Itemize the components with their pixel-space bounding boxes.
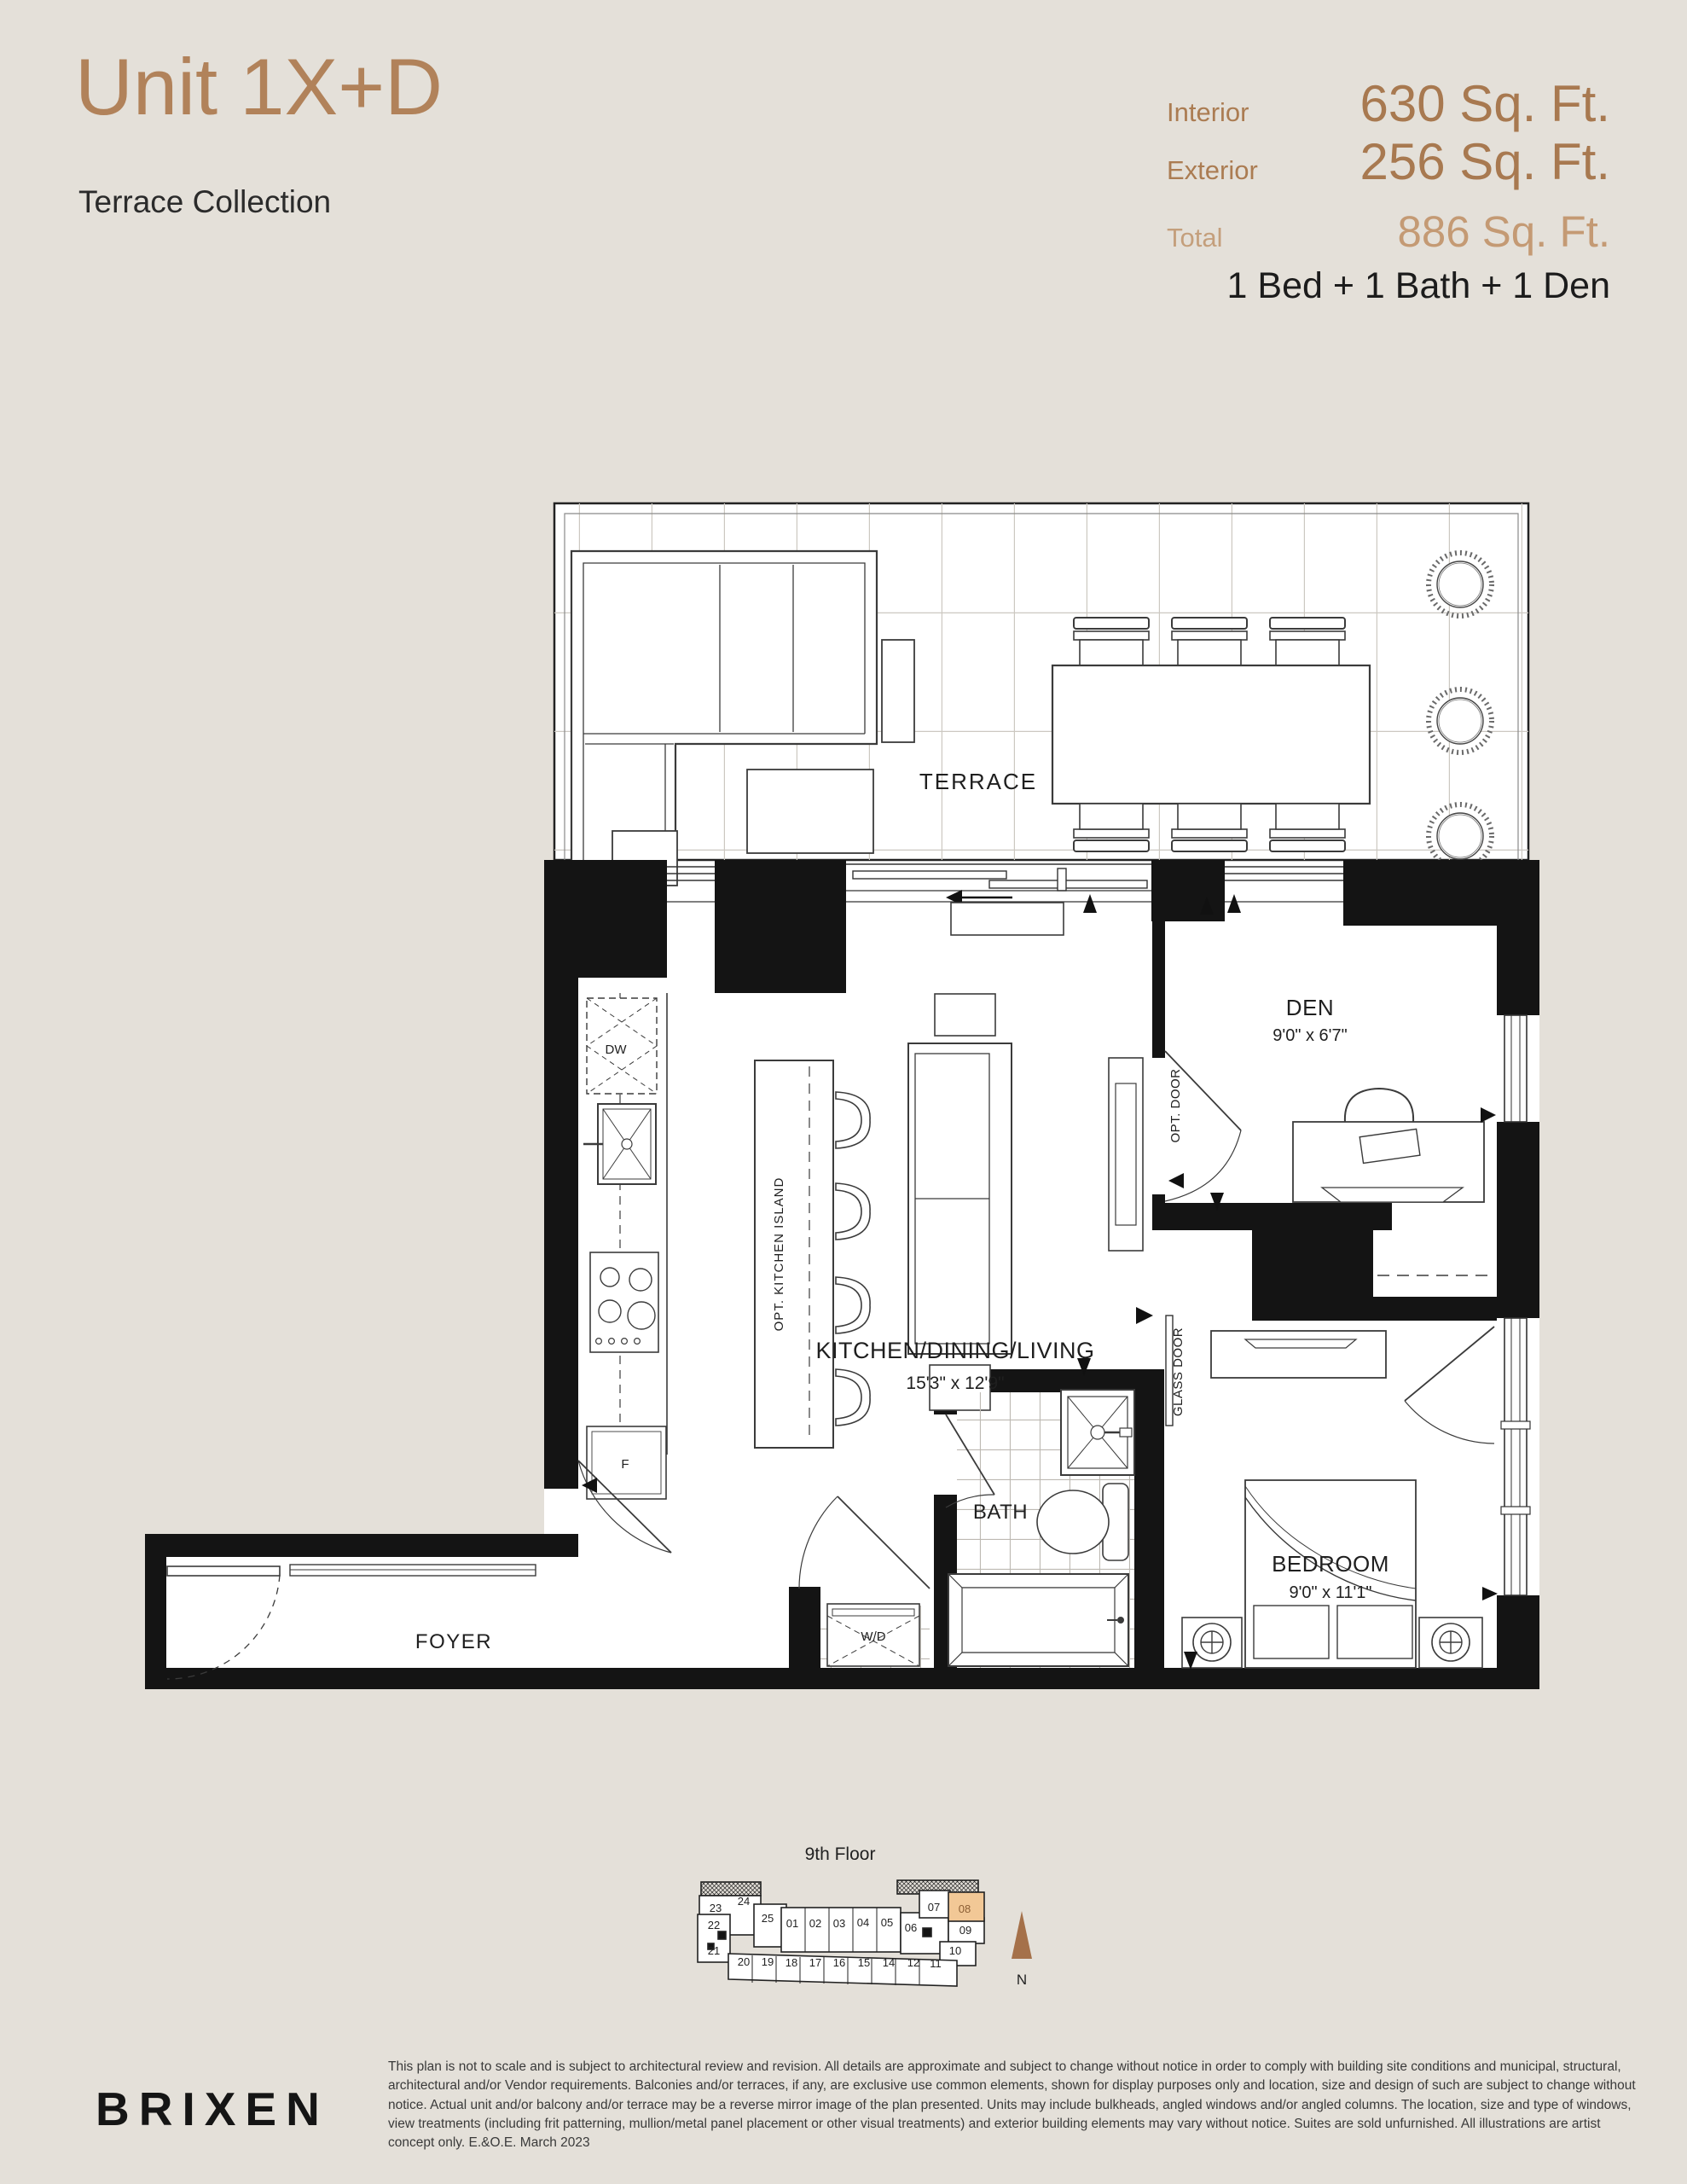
keyplan-unit-04: 04 — [857, 1916, 869, 1929]
keyplan-unit-18: 18 — [786, 1956, 797, 1969]
floorplan-page: Unit 1X+D Terrace Collection Interior 63… — [0, 0, 1687, 2184]
keyplan-unit-19: 19 — [762, 1955, 774, 1968]
room-dims-bedroom: 9'0" x 11'1" — [1289, 1583, 1371, 1602]
terrace-dining-set — [1052, 618, 1370, 851]
keyplan-unit-10: 10 — [949, 1944, 961, 1957]
nightstand-right — [1419, 1618, 1482, 1668]
window-mullion — [1501, 1421, 1530, 1429]
stat-value-total: 886 Sq. Ft. — [1398, 210, 1610, 253]
dining-chair — [1074, 618, 1149, 665]
stat-label-interior: Interior — [1167, 99, 1249, 125]
living-side-table — [935, 994, 995, 1036]
sliding-door-mullion — [1058, 868, 1066, 891]
stat-row-interior: Interior 630 Sq. Ft. — [1167, 78, 1610, 130]
keyplan-unit-03: 03 — [833, 1917, 845, 1930]
north-arrow-icon — [1012, 1911, 1032, 1959]
legal-disclaimer: This plan is not to scale and is subject… — [388, 2058, 1650, 2153]
floorplan-drawing: TERRACEKITCHEN/DINING/LIVING15'3" x 12'9… — [145, 495, 1544, 1689]
keyplan-unit-16: 16 — [833, 1956, 845, 1969]
tv-console — [1109, 1058, 1143, 1251]
dresser — [1211, 1331, 1386, 1378]
annotation-island: OPT. KITCHEN ISLAND — [772, 1177, 786, 1332]
keyplan-unit-14: 14 — [883, 1956, 895, 1969]
pillow — [1337, 1606, 1412, 1658]
keyplan-unit-05: 05 — [881, 1916, 893, 1929]
dining-chair — [1270, 618, 1345, 665]
fixture-label-dw: DW — [606, 1043, 628, 1057]
keyplan-unit-06: 06 — [905, 1921, 917, 1934]
fixture-label-wd: W/D — [861, 1629, 885, 1644]
bathtub — [948, 1574, 1128, 1666]
keyplan-hatch-roof — [701, 1882, 761, 1896]
annotation-optdoor: OPT. DOOR — [1168, 1068, 1183, 1142]
dining-chair — [1270, 804, 1345, 851]
keyplan-unit-12: 12 — [907, 1956, 919, 1969]
compass-label: N — [1017, 1972, 1027, 1988]
keyplan-unit-22: 22 — [708, 1919, 720, 1931]
area-stats: Interior 630 Sq. Ft. Exterior 256 Sq. Ft… — [1167, 78, 1610, 307]
annotation-glassdoor: GLASS DOOR — [1171, 1327, 1186, 1416]
stat-value-interior: 630 Sq. Ft. — [1360, 78, 1611, 130]
window-mullion — [1501, 1507, 1530, 1514]
den-desk — [1293, 1122, 1484, 1202]
room-label-bath: BATH — [973, 1501, 1028, 1524]
media-bench — [951, 903, 1064, 935]
keyplan-unit-11: 11 — [930, 1957, 942, 1970]
living-sofa — [908, 1043, 1012, 1354]
dining-chair — [1172, 804, 1247, 851]
keyplan-unit-08: 08 — [959, 1902, 971, 1915]
keyplan: 9th Floor 232425010203040506070809101112… — [674, 1833, 1054, 2034]
dining-chair — [1074, 804, 1149, 851]
room-dims-den: 9'0" x 6'7" — [1272, 1026, 1347, 1045]
compass: N — [1012, 1911, 1032, 1988]
keyplan-unit-17: 17 — [809, 1956, 821, 1969]
sliding-door-panel — [853, 871, 1006, 879]
keyplan-unit-09: 09 — [959, 1924, 971, 1937]
floorplan-svg: TERRACEKITCHEN/DINING/LIVING15'3" x 12'9… — [145, 495, 1544, 1689]
keyplan-unit-02: 02 — [809, 1917, 821, 1930]
stat-label-exterior: Exterior — [1167, 157, 1258, 183]
keyplan-unit-20: 20 — [738, 1955, 750, 1968]
stat-row-total: Total 886 Sq. Ft. — [1167, 210, 1610, 253]
stat-row-exterior: Exterior 256 Sq. Ft. — [1167, 136, 1610, 188]
cooktop — [590, 1252, 658, 1352]
keyplan-unit-01: 01 — [786, 1917, 798, 1930]
bedroom-window — [1504, 1318, 1527, 1595]
keyplan-title: 9th Floor — [805, 1844, 876, 1864]
sliding-door-panel — [989, 880, 1147, 888]
keyplan-unit-24: 24 — [738, 1895, 750, 1908]
fixture-label-f: F — [621, 1457, 629, 1472]
terrace-coffee-table — [747, 770, 873, 853]
brand-logo: BRIXEN — [96, 2082, 329, 2136]
room-label-kitchen: KITCHEN/DINING/LIVING — [815, 1338, 1094, 1363]
den-window — [1504, 1015, 1527, 1122]
room-dims-kitchen: 15'3" x 12'9" — [906, 1374, 1004, 1393]
keyplan-unit-07: 07 — [928, 1901, 940, 1914]
room-label-terrace: TERRACE — [919, 769, 1037, 794]
stat-label-total: Total — [1167, 224, 1222, 251]
dining-chair — [1172, 618, 1247, 665]
keyplan-unit-23: 23 — [710, 1902, 722, 1914]
pillow — [1254, 1606, 1329, 1658]
room-label-bedroom: BEDROOM — [1272, 1551, 1389, 1577]
bath-area — [946, 1390, 1134, 1668]
room-label-foyer: FOYER — [415, 1630, 492, 1653]
terrace-side-table — [882, 640, 914, 742]
unit-configuration: 1 Bed + 1 Bath + 1 Den — [1167, 265, 1610, 307]
room-label-den: DEN — [1286, 995, 1334, 1020]
keyplan-unit-21: 21 — [708, 1944, 720, 1957]
keyplan-unit-15: 15 — [858, 1956, 870, 1969]
terrace-area — [554, 503, 1528, 886]
collection-subtitle: Terrace Collection — [78, 184, 331, 220]
dining-table — [1052, 665, 1370, 804]
page-title: Unit 1X+D — [75, 41, 443, 133]
keyplan-svg: 9th Floor 232425010203040506070809101112… — [674, 1833, 1054, 2034]
shower — [1061, 1390, 1134, 1475]
keyplan-unit-25: 25 — [762, 1912, 774, 1925]
stat-value-exterior: 256 Sq. Ft. — [1360, 136, 1611, 188]
